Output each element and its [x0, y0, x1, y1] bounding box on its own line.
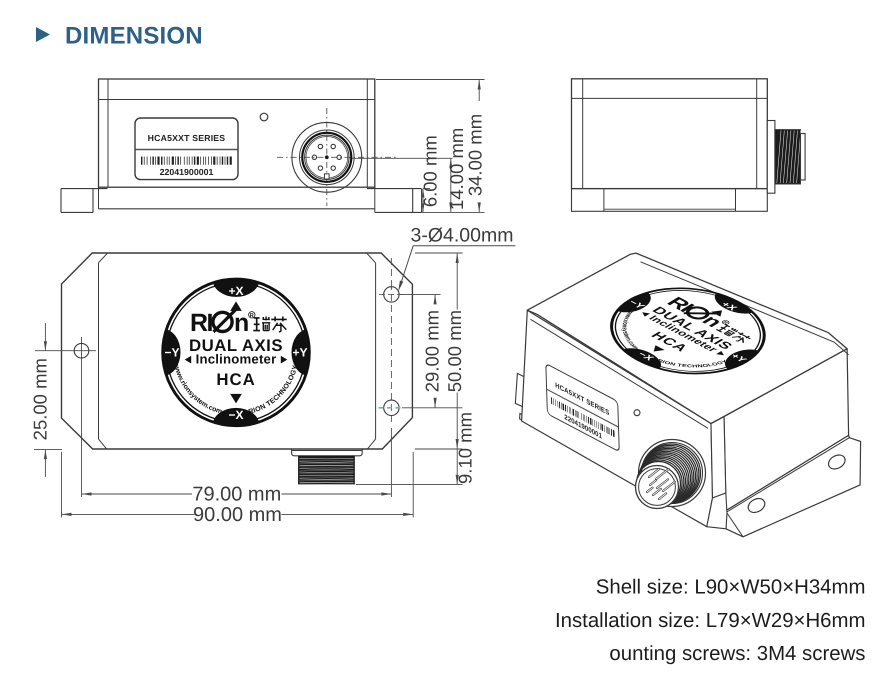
svg-text:34.00 mm: 34.00 mm	[465, 114, 486, 196]
svg-text:90.00 mm: 90.00 mm	[193, 504, 282, 526]
svg-text:ounting screws: 3M4 screws: ounting screws: 3M4 screws	[609, 643, 865, 665]
svg-text:DIMENSION: DIMENSION	[65, 23, 203, 50]
svg-text:Shell size: L90×W50×H34mm: Shell size: L90×W50×H34mm	[596, 577, 866, 599]
svg-text:29.00 mm: 29.00 mm	[422, 310, 443, 392]
svg-text:6.00 mm: 6.00 mm	[420, 135, 441, 207]
svg-text:79.00 mm: 79.00 mm	[192, 484, 281, 506]
svg-text:25.00 mm: 25.00 mm	[30, 358, 51, 440]
svg-text:9.10 mm: 9.10 mm	[455, 412, 476, 484]
svg-text:3-Ø4.00mm: 3-Ø4.00mm	[411, 225, 514, 247]
svg-text:Installation size: L79×W29×H6m: Installation size: L79×W29×H6mm	[555, 610, 866, 632]
svg-text:50.00 mm: 50.00 mm	[444, 310, 465, 392]
